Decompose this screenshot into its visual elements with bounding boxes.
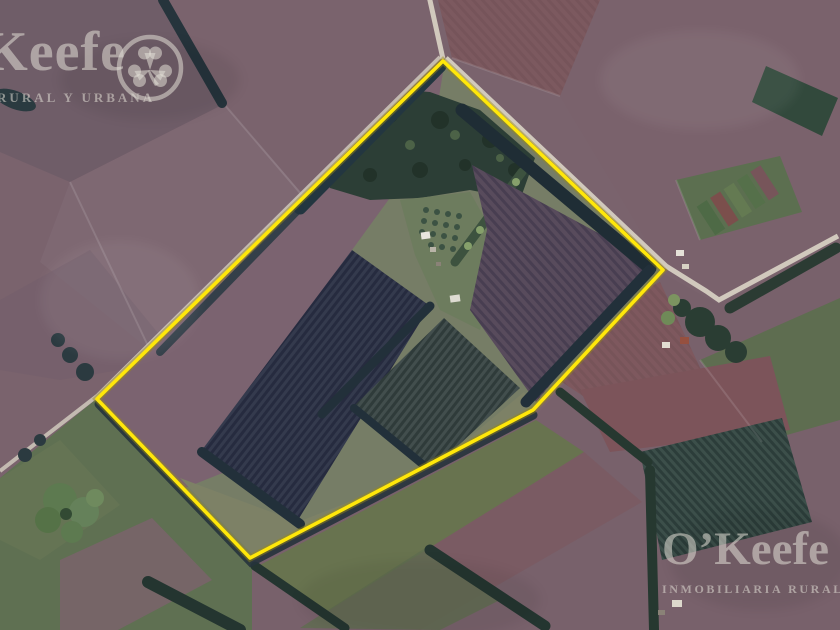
satellite-photo-screenshot: O’Keefe INMOBILIARIA RURAL Y URBANA O’Ke… [0,0,840,630]
shamrock-logo-icon [112,30,188,106]
